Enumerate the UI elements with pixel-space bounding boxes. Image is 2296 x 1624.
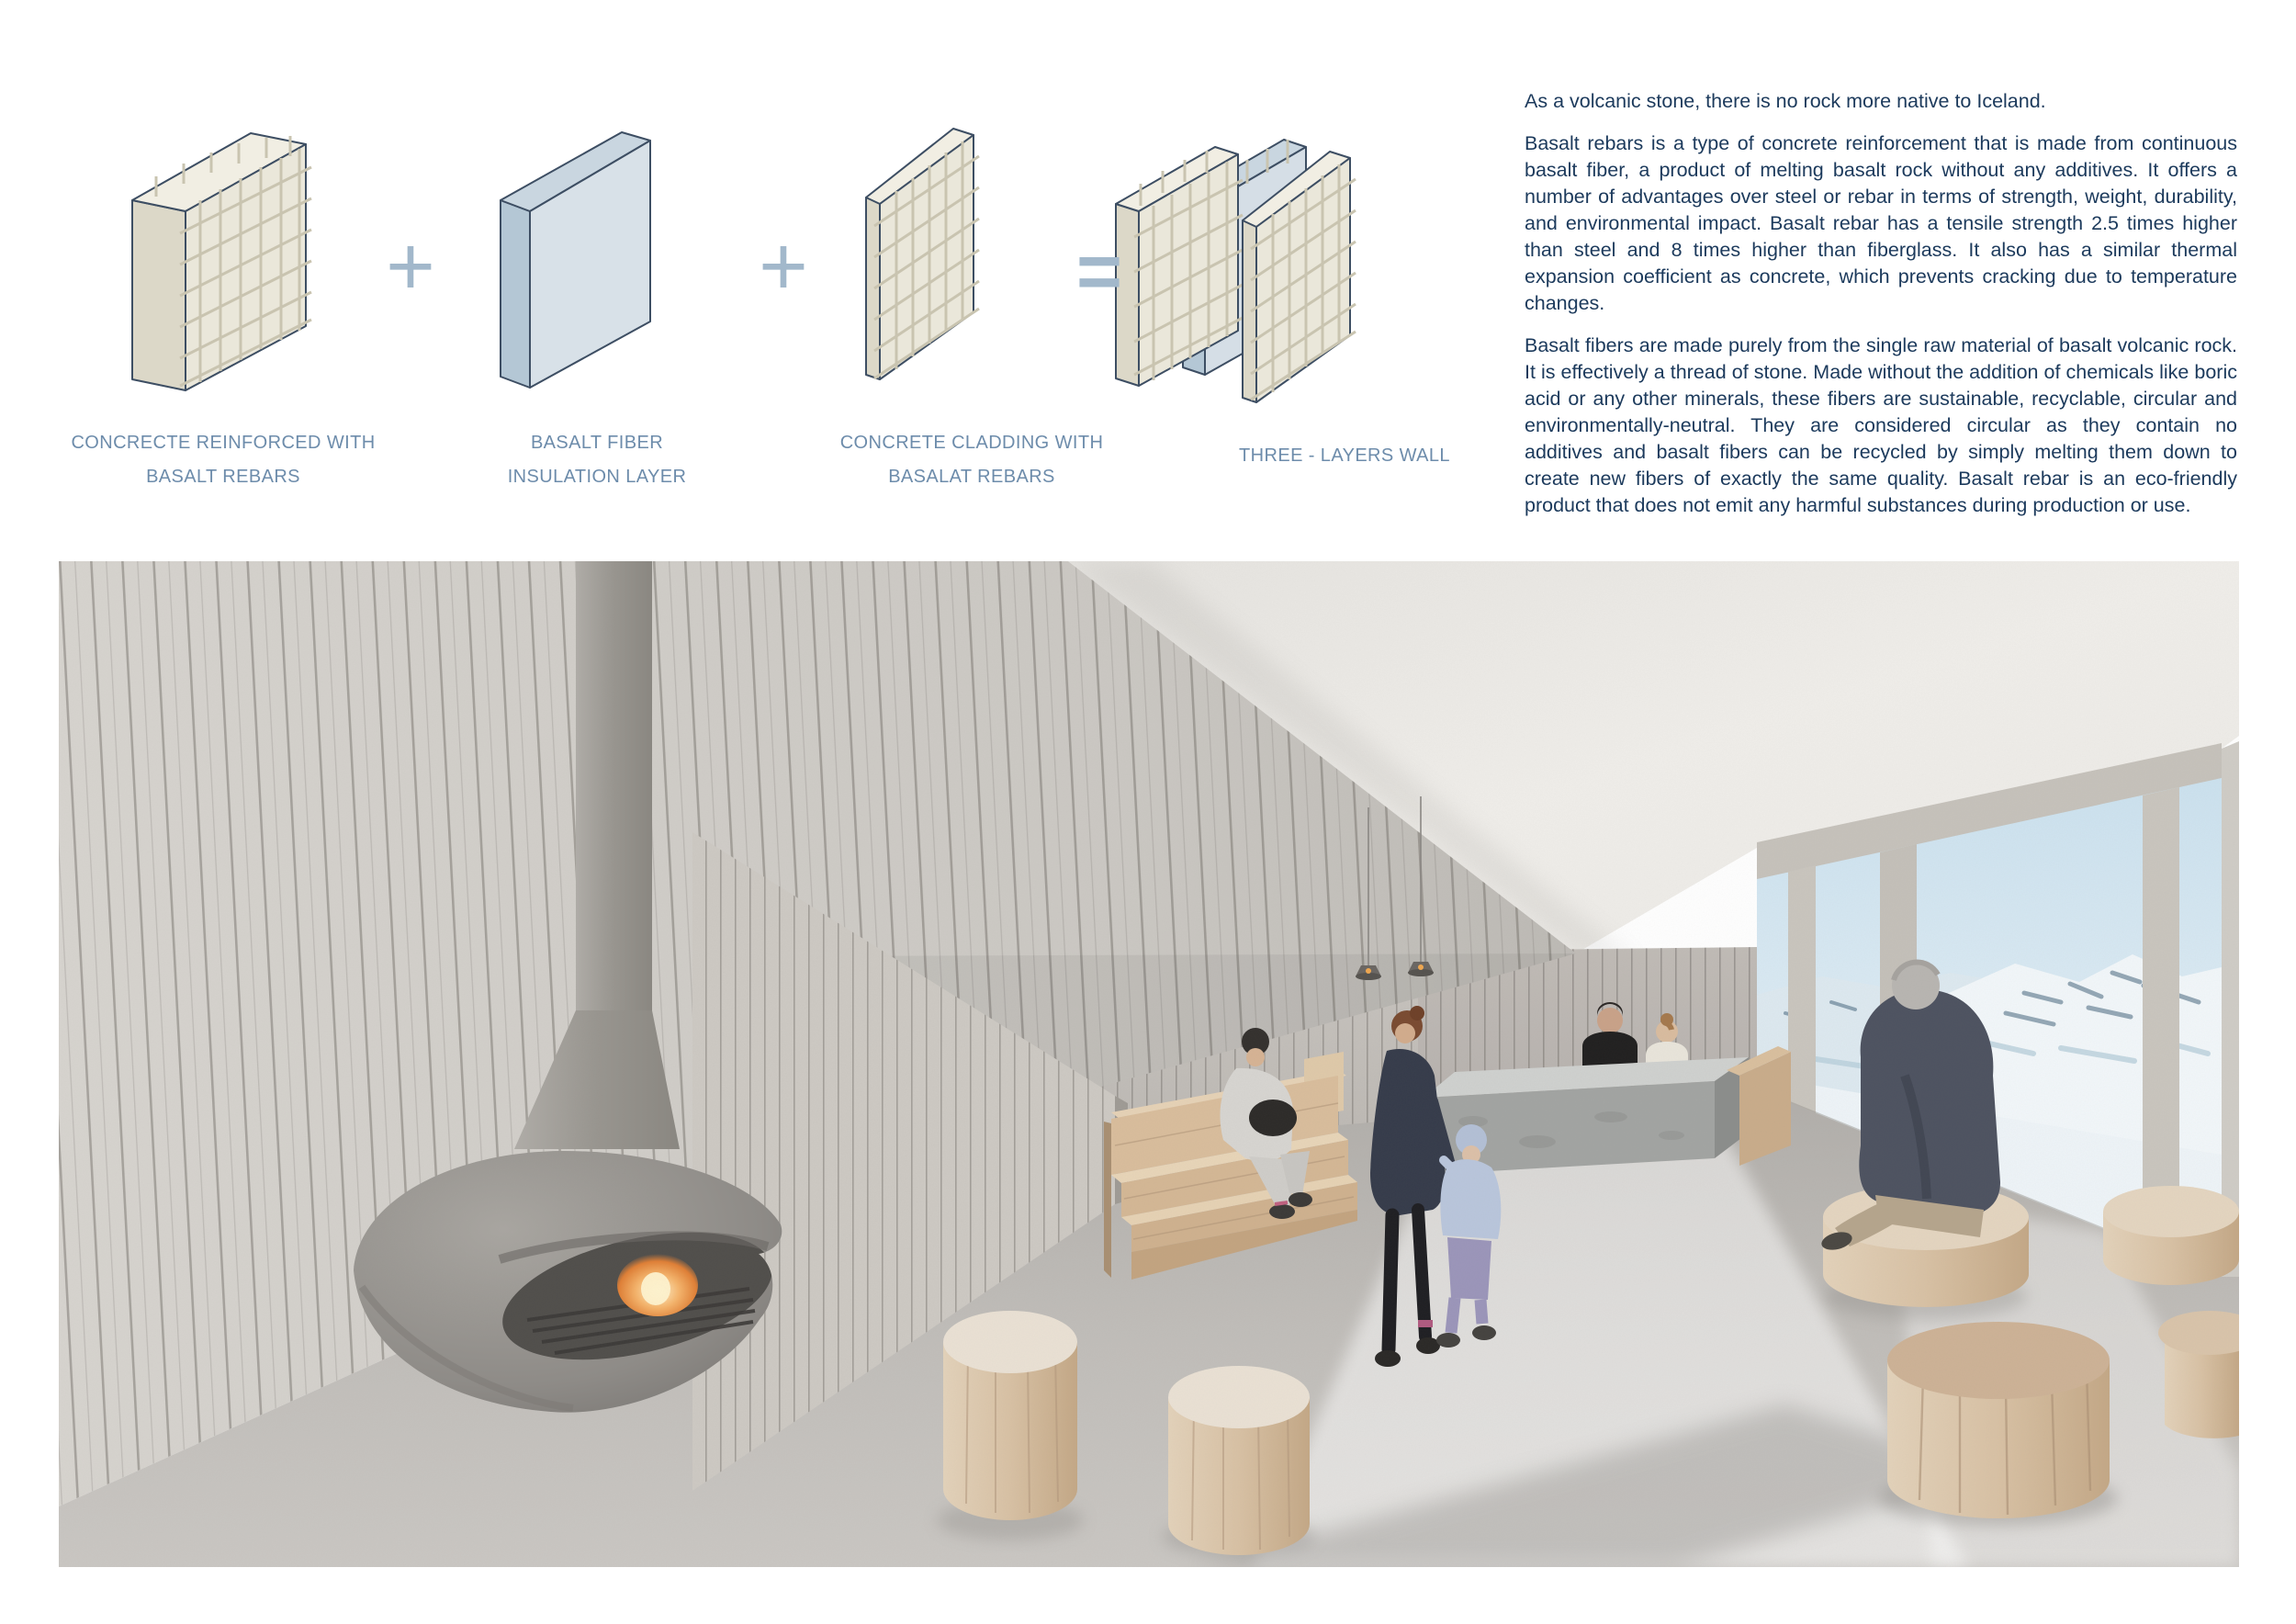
interior-scene <box>59 561 2239 1567</box>
label-cladding: CONCRETE CLADDING WITH BASALAT REBARS <box>816 426 1128 494</box>
label-line: BASALT REBARS <box>67 460 379 494</box>
label-line: BASALT FIBER <box>441 426 753 460</box>
label-concrete-reinforced: CONCRECTE REINFORCED WITH BASALT REBARS <box>67 426 379 494</box>
label-line: CONCRETE CLADDING WITH <box>816 426 1128 460</box>
label-line: INSULATION LAYER <box>441 460 753 494</box>
equals-operator: = <box>1076 232 1120 311</box>
label-line: THREE - LAYERS WALL <box>1188 439 1501 473</box>
interior-rendering <box>59 561 2239 1567</box>
label-three-layers-wall: THREE - LAYERS WALL <box>1188 439 1501 473</box>
label-insulation: BASALT FIBER INSULATION LAYER <box>441 426 753 494</box>
label-line: CONCRECTE REINFORCED WITH <box>67 426 379 460</box>
panel-insulation <box>501 132 650 388</box>
panel-three-layer-wall <box>1116 140 1356 402</box>
presentation-board: + + = CONCRECTE REINFORCED WITH BASALT R… <box>0 0 2296 1624</box>
plus-operator-1: + <box>386 224 435 309</box>
paragraph-intro: As a volcanic stone, there is no rock mo… <box>1525 88 2237 115</box>
texture-overlay <box>59 561 2239 1567</box>
panel-concrete-reinforced <box>132 133 311 390</box>
article-text: As a volcanic stone, there is no rock mo… <box>1525 88 2237 535</box>
paragraph-rebars: Basalt rebars is a type of concrete rein… <box>1525 130 2237 317</box>
label-line: BASALAT REBARS <box>816 460 1128 494</box>
panel-cladding <box>866 129 979 379</box>
paragraph-fibers: Basalt fibers are made purely from the s… <box>1525 333 2237 519</box>
plus-operator-2: + <box>759 224 808 309</box>
